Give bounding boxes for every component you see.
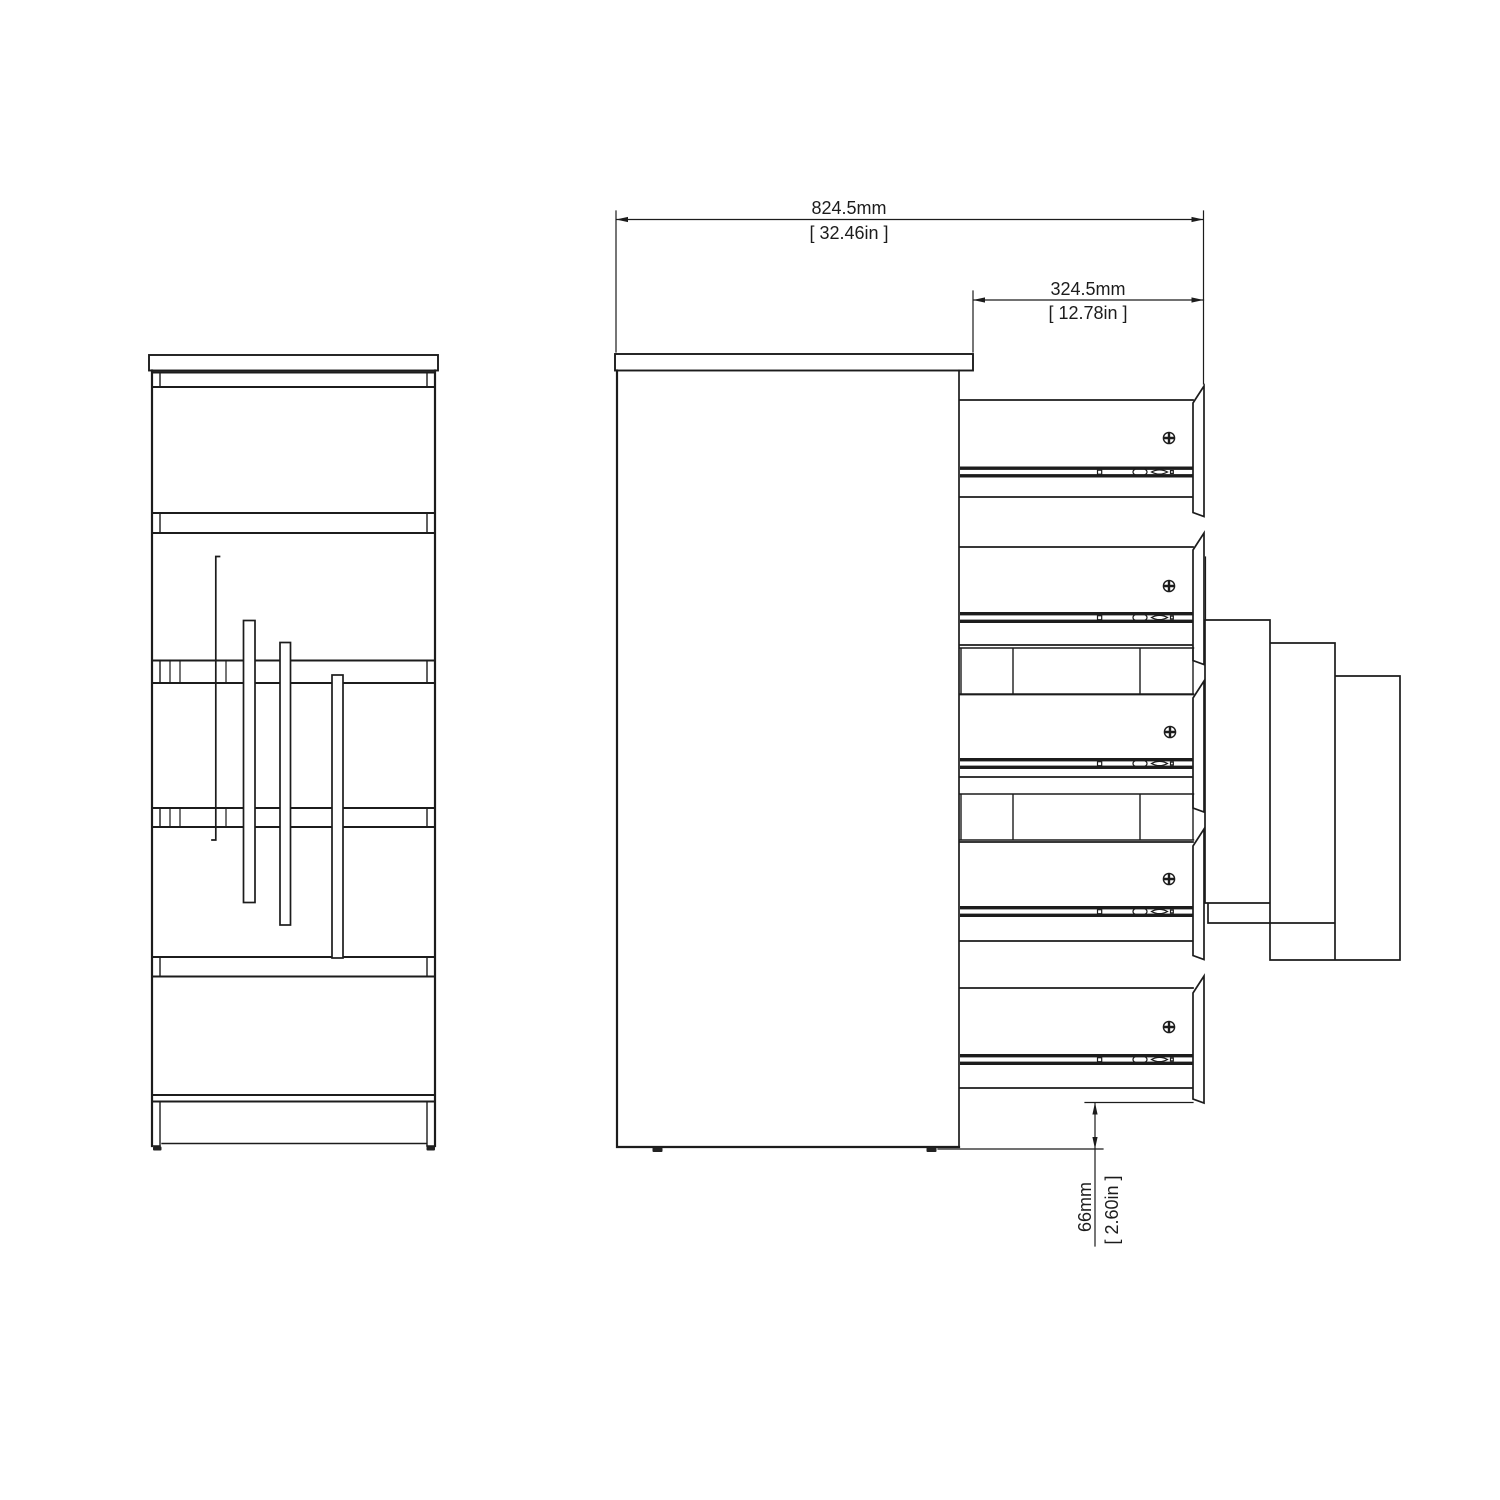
drawer-front-profile xyxy=(1193,681,1204,812)
handle-bar-2 xyxy=(244,621,256,903)
dim-base-clearance-imperial: [ 2.60in ] xyxy=(1102,1175,1122,1244)
front-gap-caps xyxy=(160,373,427,1147)
dim-base-clearance-metric: 66mm xyxy=(1075,1182,1095,1232)
front-gap-ticks xyxy=(170,661,226,828)
side-drawer-2 xyxy=(960,533,1204,665)
dim-overall-depth-imperial: [ 32.46in ] xyxy=(809,223,888,243)
arrow-down-icon xyxy=(1092,1137,1097,1149)
screw-icon xyxy=(1163,1021,1174,1032)
side-carcass xyxy=(617,371,959,1148)
drawer-front-profile xyxy=(1193,533,1204,665)
front-feet xyxy=(153,1147,435,1151)
side-drawer-4 xyxy=(960,829,1204,960)
side-right-foot xyxy=(927,1148,937,1153)
handle-bar-1 xyxy=(212,557,220,841)
front-left-foot xyxy=(153,1147,162,1151)
side-cross-rail-2 xyxy=(960,794,1194,840)
handle-bar-3 xyxy=(280,643,291,926)
front-plinth xyxy=(152,1144,435,1147)
side-cross-rail-1 xyxy=(960,648,1194,694)
screw-icon xyxy=(1163,580,1174,591)
side-view xyxy=(615,354,1400,1152)
side-drawer-3 xyxy=(960,681,1204,812)
arrow-left-icon xyxy=(973,297,985,302)
drawer-slide-rail-icon xyxy=(960,758,1193,769)
side-left-foot xyxy=(653,1148,663,1153)
arrow-up-icon xyxy=(1092,1103,1097,1115)
drawer-slide-rail-icon xyxy=(960,1054,1193,1065)
drawer-front-profile xyxy=(1193,829,1204,960)
side-top-panel xyxy=(615,354,973,371)
dim-drawer-extension-imperial: [ 12.78in ] xyxy=(1048,303,1127,323)
drawer-slide-rail-icon xyxy=(960,467,1193,478)
drawer-slide-rail-icon xyxy=(960,906,1193,917)
arrow-right-icon xyxy=(1192,297,1204,302)
drawer-slide-rail-icon xyxy=(960,612,1193,623)
side-drawer-5 xyxy=(960,976,1204,1103)
handle-bar-4 xyxy=(332,675,343,958)
dim-drawer-extension-metric: 324.5mm xyxy=(1050,279,1125,299)
front-right-foot xyxy=(427,1147,436,1151)
screw-icon xyxy=(1164,726,1175,737)
front-top-panel xyxy=(149,355,438,371)
side-handle-profiles xyxy=(1205,557,1400,960)
dim-overall-depth-metric: 824.5mm xyxy=(811,198,886,218)
screw-icon xyxy=(1163,432,1174,443)
front-view xyxy=(149,355,438,1151)
chest-of-drawers-technical-drawing: 824.5mm [ 32.46in ] 324.5mm [ 12.78in ] … xyxy=(0,0,1500,1500)
drawer-front-profile xyxy=(1193,386,1204,517)
technical-drawing-canvas: 824.5mm [ 32.46in ] 324.5mm [ 12.78in ] … xyxy=(0,0,1500,1500)
arrow-right-icon xyxy=(1192,217,1204,222)
front-carcass xyxy=(152,371,435,1147)
dim-drawer-extension: 324.5mm [ 12.78in ] xyxy=(973,279,1204,352)
arrow-left-icon xyxy=(616,217,628,222)
front-handle-bars xyxy=(212,557,343,959)
screw-icon xyxy=(1163,873,1174,884)
dim-base-clearance: 66mm [ 2.60in ] xyxy=(938,1103,1193,1247)
side-feet xyxy=(653,1148,937,1153)
front-drawer-edges xyxy=(152,373,435,1102)
side-drawer-1 xyxy=(960,386,1204,517)
drawer-front-profile xyxy=(1193,976,1204,1103)
